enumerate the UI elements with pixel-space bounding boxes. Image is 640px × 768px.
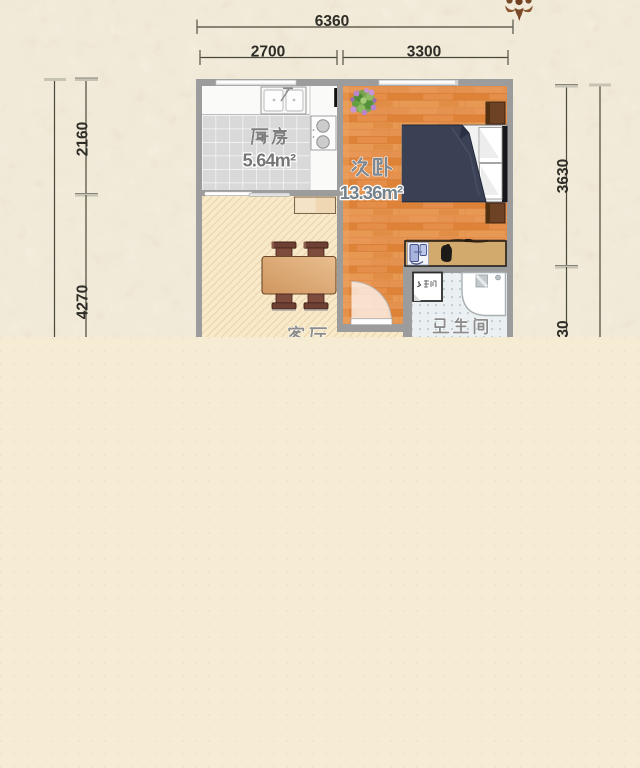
svg-text:13.36m²: 13.36m² <box>340 182 403 203</box>
svg-text:6360: 6360 <box>315 13 349 30</box>
svg-text:5.64m²: 5.64m² <box>243 151 297 171</box>
svg-text:2160: 2160 <box>75 122 92 156</box>
svg-text:3630: 3630 <box>555 159 572 193</box>
svg-text:30: 30 <box>555 320 572 337</box>
svg-text:3300: 3300 <box>407 44 441 61</box>
svg-text:4270: 4270 <box>75 285 92 319</box>
svg-text:2700: 2700 <box>251 44 285 61</box>
